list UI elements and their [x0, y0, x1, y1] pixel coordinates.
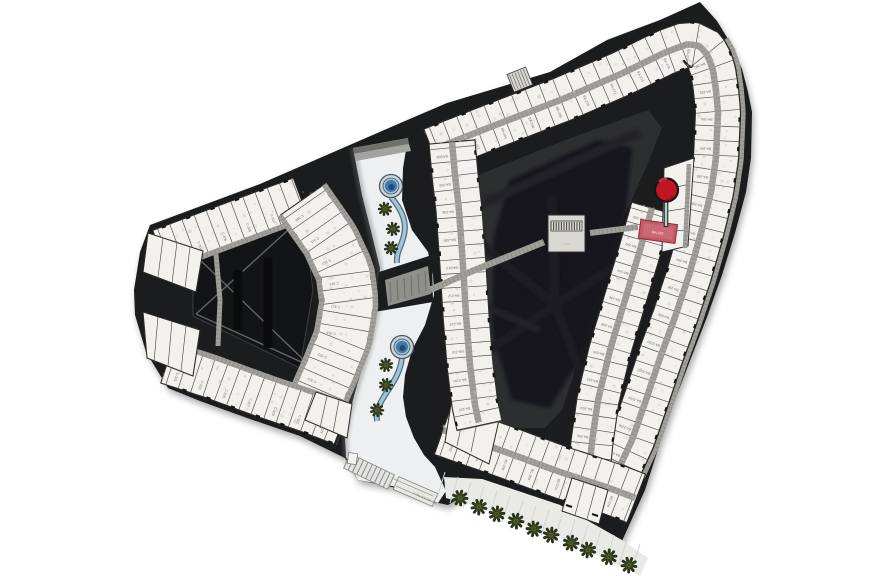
- svg-text:BA-208: BA-208: [444, 238, 456, 243]
- svg-text:BA-286: BA-286: [700, 146, 712, 150]
- svg-text:BA-284: BA-284: [701, 117, 713, 121]
- svg-text:LOBBY: LOBBY: [561, 242, 570, 246]
